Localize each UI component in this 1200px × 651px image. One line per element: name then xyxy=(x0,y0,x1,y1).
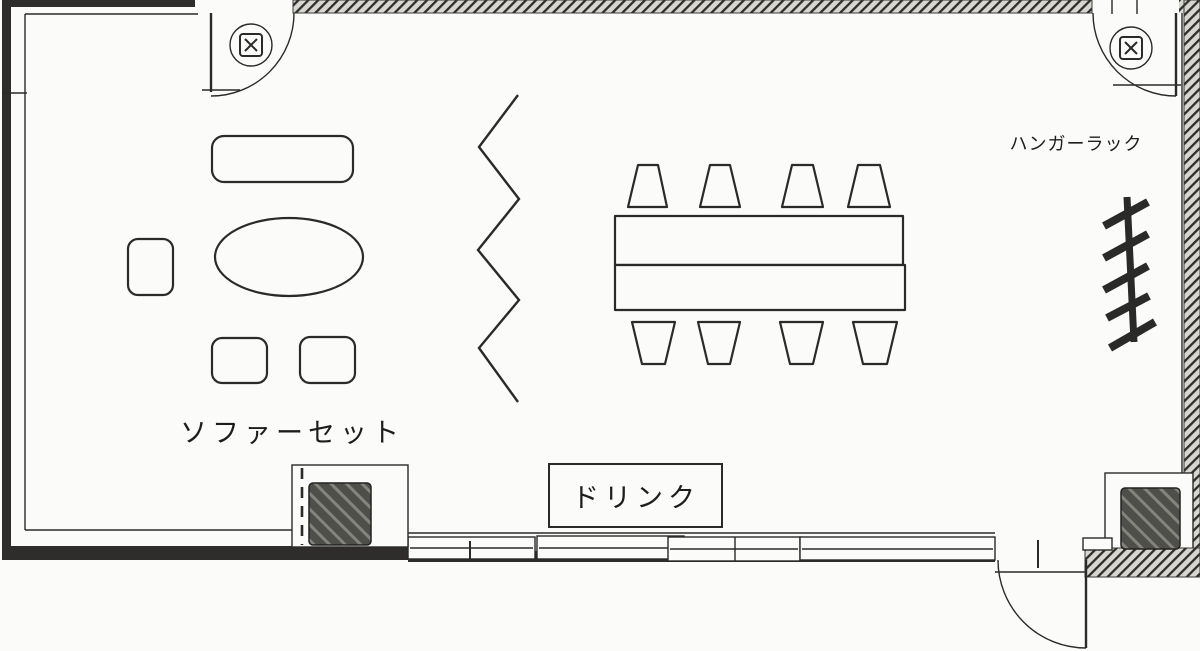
drink-counter: ドリンク xyxy=(549,464,722,527)
pillar-bottom-left xyxy=(292,465,408,547)
top-wall-solid xyxy=(2,0,195,7)
table-bottom-half xyxy=(615,265,905,310)
hanger-rack-label: ハンガーラック xyxy=(1010,134,1143,154)
oval-table xyxy=(215,218,363,296)
armchair-left xyxy=(128,239,173,295)
table-top-half xyxy=(615,216,903,265)
sofa-set-label: ソファーセット xyxy=(180,418,404,448)
pillar-core xyxy=(309,483,371,545)
armchair-bottom-2 xyxy=(300,337,355,383)
door-jamb-box xyxy=(1083,538,1112,550)
drink-label: ドリンク xyxy=(572,483,700,513)
window-band xyxy=(408,533,995,562)
pillar-core xyxy=(1121,488,1180,549)
sofa xyxy=(212,136,353,182)
armchair-bottom-1 xyxy=(212,338,267,383)
top-wall-hatched xyxy=(293,0,1092,13)
bottom-wall-hatched xyxy=(1085,548,1200,577)
bottom-wall-solid xyxy=(2,546,408,560)
left-wall xyxy=(2,0,11,560)
floor-plan: ソファーセット ハンガーラック ドリンク xyxy=(0,0,1200,651)
